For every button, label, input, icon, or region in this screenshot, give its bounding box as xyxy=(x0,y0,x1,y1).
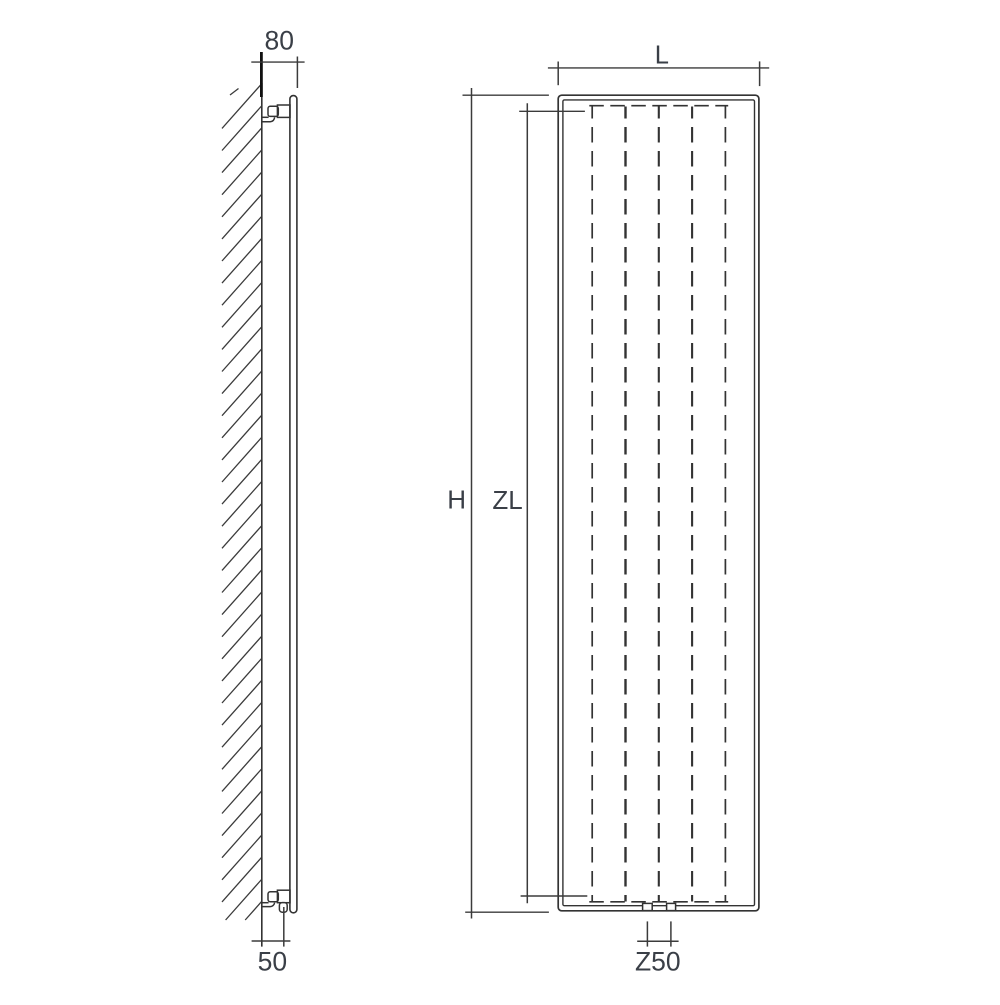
svg-text:H: H xyxy=(447,484,466,514)
svg-text:80: 80 xyxy=(264,26,293,56)
svg-text:50: 50 xyxy=(258,947,287,977)
svg-text:Z50: Z50 xyxy=(635,947,681,977)
svg-text:ZL: ZL xyxy=(492,485,522,515)
svg-text:L: L xyxy=(655,42,669,70)
